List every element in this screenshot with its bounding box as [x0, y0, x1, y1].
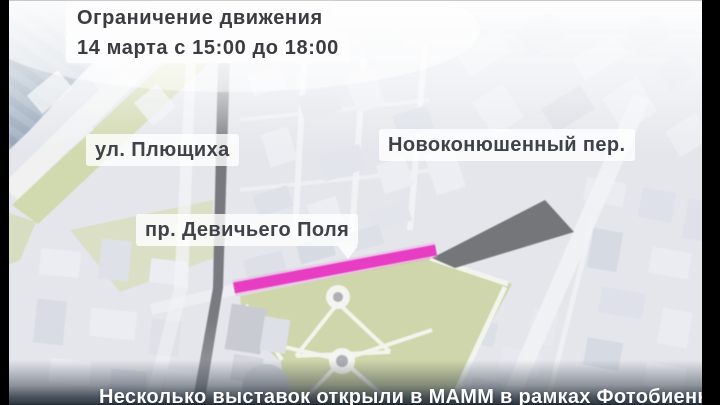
street-label-plyushchikha: ул. Плющиха: [86, 134, 239, 166]
triangle-down-icon: [338, 246, 358, 259]
street-label-novokonyushenny: Новоконюшенный пер.: [379, 129, 635, 161]
street-label-devichyego-polya: пр. Девичьего Поля: [136, 214, 358, 246]
banner-title: Ограничение движения: [66, 3, 334, 33]
ticker-text: Несколько выставок открыли в МАММ в рамк…: [99, 384, 720, 405]
tv-frame: Ограничение движения 14 марта с 15:00 до…: [0, 0, 720, 405]
letterbox-right: [702, 0, 720, 405]
banner-subtitle: 14 марта с 15:00 до 18:00: [66, 33, 350, 63]
letterbox-left: [0, 0, 9, 405]
street-label-text: пр. Девичьего Поля: [145, 219, 349, 241]
map-scene: Ограничение движения 14 марта с 15:00 до…: [0, 0, 720, 405]
